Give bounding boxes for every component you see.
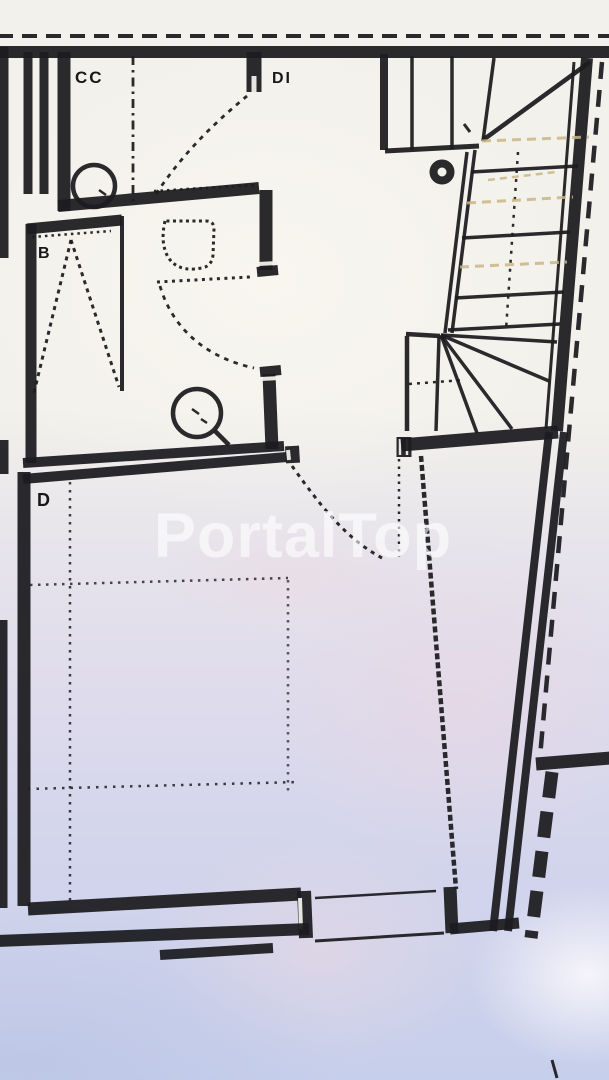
room-label-di: DI	[272, 70, 292, 87]
watermark-text: PortalTop	[154, 501, 452, 571]
room-label-b: B	[38, 245, 50, 262]
room-label-cc: CC	[75, 68, 104, 87]
door-jamb-room-d-slot	[288, 450, 289, 460]
door-jamb-bathroom-upper-slot	[258, 263, 277, 264]
door-jamb-bathroom-lower-slot	[261, 378, 280, 379]
floor-plan-drawing: CC DI B D PortalTop	[0, 0, 609, 1080]
stair-landing-wall-top	[406, 334, 440, 336]
door-jamb-bathroom-upper	[257, 270, 278, 272]
room-label-d: D	[37, 490, 50, 510]
door-jamb-bathroom-lower	[260, 370, 281, 372]
wall-stub-bottom-right	[450, 923, 519, 929]
wall-bathroom-right-lower	[269, 374, 272, 449]
floor-plan-scan: CC DI B D PortalTop	[0, 0, 609, 1080]
wall-terrace-step	[160, 948, 273, 955]
door-jamb-room-d	[292, 446, 293, 463]
wall-corner-bottom-right	[536, 758, 609, 764]
